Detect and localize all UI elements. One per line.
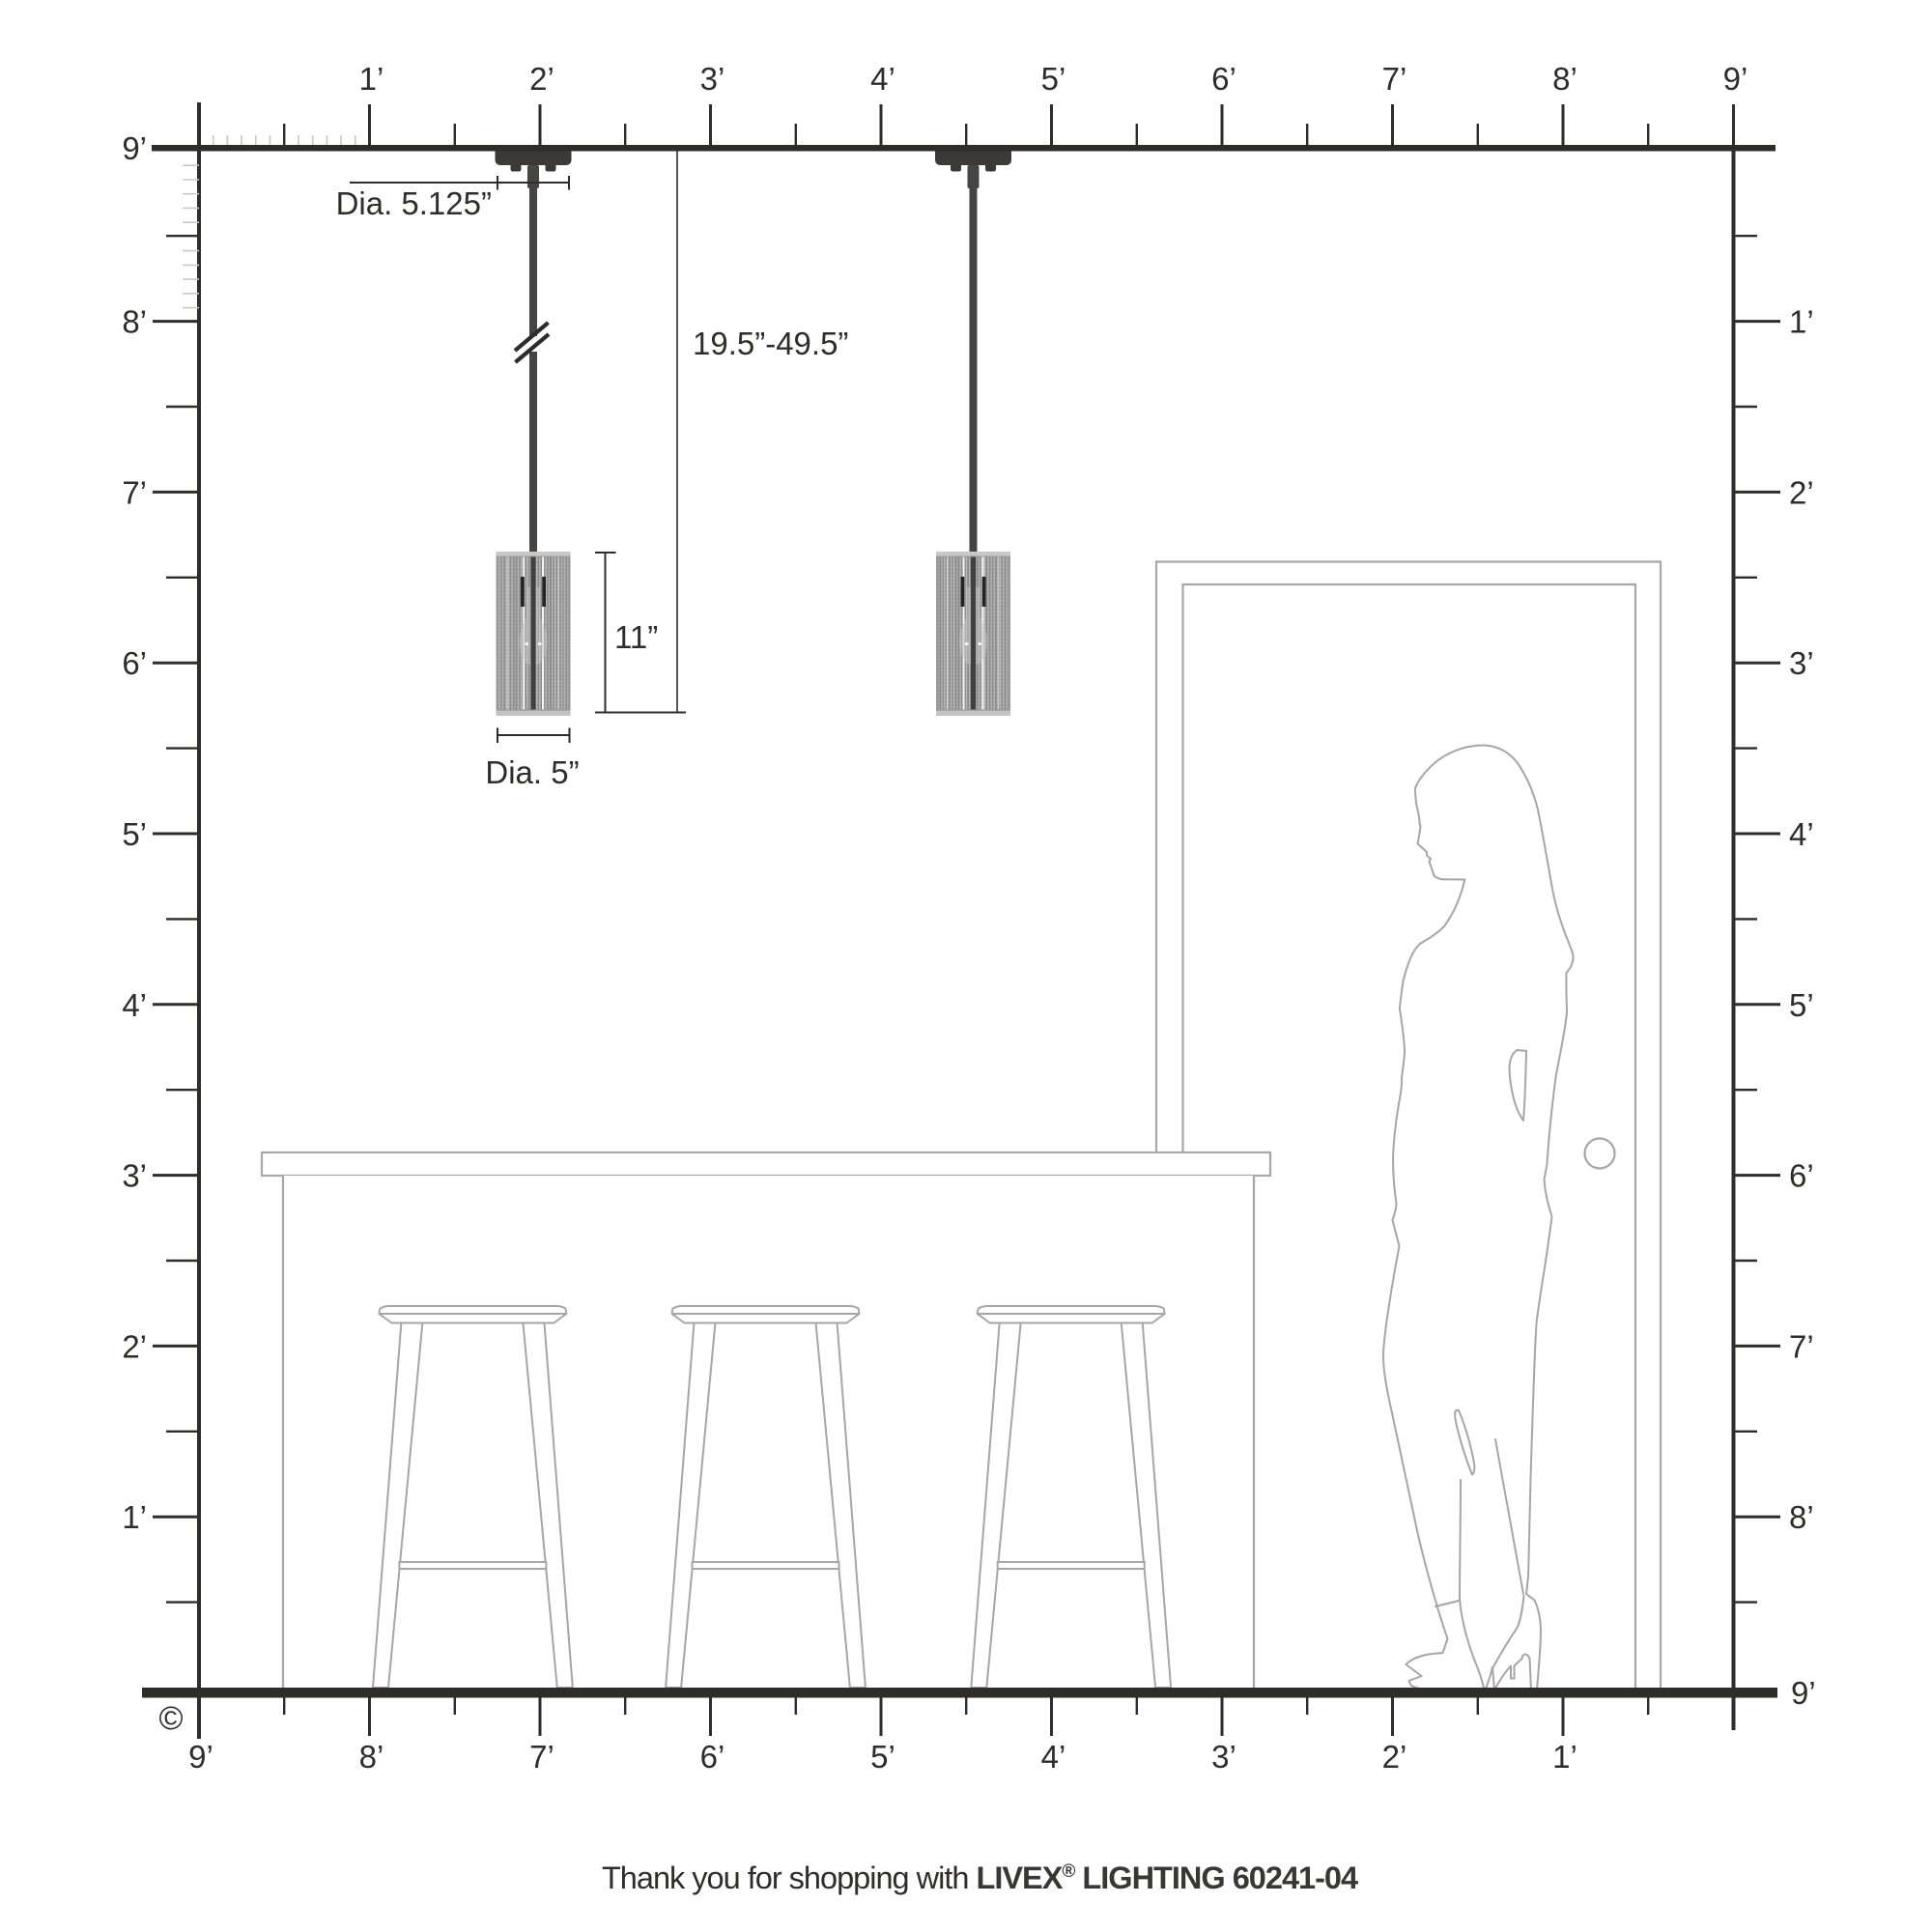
svg-text:11”: 11” (614, 619, 658, 655)
svg-text:7’: 7’ (1789, 1328, 1814, 1364)
svg-text:8’: 8’ (122, 304, 147, 340)
svg-text:Dia. 5”: Dia. 5” (485, 754, 579, 790)
svg-text:9’: 9’ (1791, 1675, 1816, 1711)
svg-text:9’: 9’ (188, 1739, 213, 1775)
svg-text:©: © (158, 1700, 183, 1737)
svg-text:3’: 3’ (700, 61, 725, 97)
svg-text:Thank you for shopping with LI: Thank you for shopping with LIVEX® LIGHT… (602, 1861, 1358, 1895)
svg-text:8’: 8’ (1552, 61, 1577, 97)
svg-text:8’: 8’ (1789, 1499, 1814, 1535)
svg-text:19.5”-49.5”: 19.5”-49.5” (693, 326, 848, 361)
svg-text:7’: 7’ (529, 1739, 554, 1775)
svg-text:2’: 2’ (529, 61, 554, 97)
svg-text:5’: 5’ (1789, 987, 1814, 1023)
svg-text:6’: 6’ (1789, 1158, 1814, 1194)
svg-text:5’: 5’ (870, 1739, 895, 1775)
svg-text:4’: 4’ (122, 987, 147, 1023)
svg-text:8’: 8’ (359, 1739, 384, 1775)
svg-text:6’: 6’ (1211, 61, 1236, 97)
svg-text:Dia. 5.125”: Dia. 5.125” (336, 185, 492, 221)
svg-text:1’: 1’ (359, 61, 384, 97)
svg-text:1’: 1’ (1552, 1739, 1577, 1775)
svg-text:3’: 3’ (1789, 645, 1814, 681)
svg-text:2’: 2’ (1382, 1739, 1407, 1775)
svg-text:4’: 4’ (870, 61, 895, 97)
svg-text:5’: 5’ (1041, 61, 1066, 97)
svg-text:6’: 6’ (700, 1739, 725, 1775)
svg-text:6’: 6’ (122, 645, 147, 681)
svg-text:5’: 5’ (122, 816, 147, 852)
svg-text:2’: 2’ (122, 1328, 147, 1364)
svg-text:2’: 2’ (1789, 474, 1814, 510)
svg-text:4’: 4’ (1041, 1739, 1066, 1775)
svg-text:1’: 1’ (1789, 304, 1814, 340)
svg-text:9’: 9’ (1723, 61, 1748, 97)
svg-text:9’: 9’ (122, 130, 147, 166)
svg-text:3’: 3’ (122, 1158, 147, 1194)
svg-text:3’: 3’ (1211, 1739, 1236, 1775)
svg-text:1’: 1’ (122, 1499, 147, 1535)
svg-text:4’: 4’ (1789, 816, 1814, 852)
svg-text:7’: 7’ (1382, 61, 1407, 97)
svg-text:7’: 7’ (122, 474, 147, 510)
